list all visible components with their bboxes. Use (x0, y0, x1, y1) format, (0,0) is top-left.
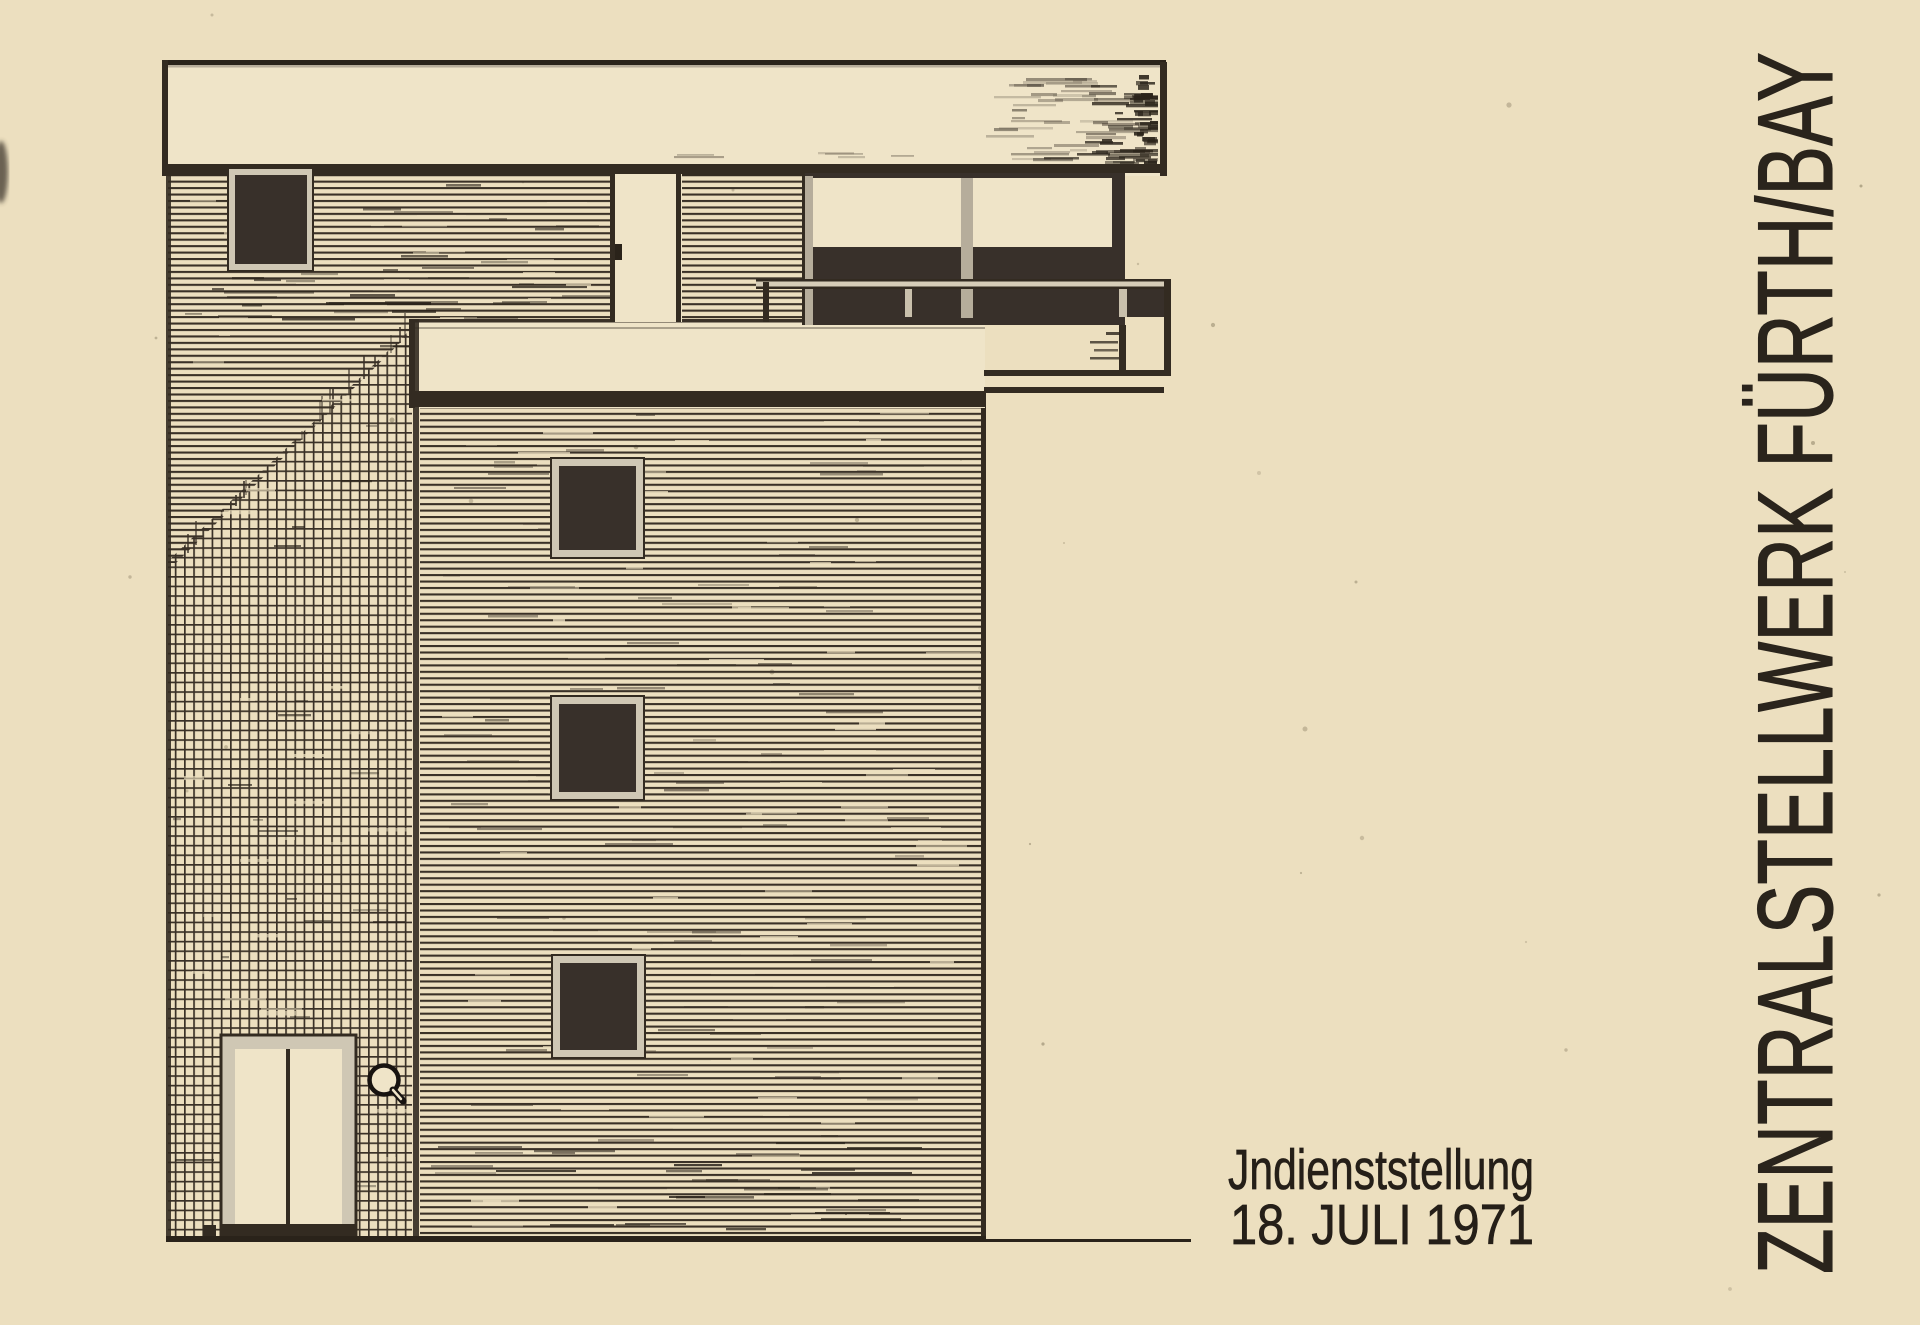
svg-text:18. JULI 1971: 18. JULI 1971 (1230, 1193, 1534, 1257)
svg-text:ZENTRALSTELLWERK FÜRTH/BAY: ZENTRALSTELLWERK FÜRTH/BAY (1735, 52, 1855, 1274)
